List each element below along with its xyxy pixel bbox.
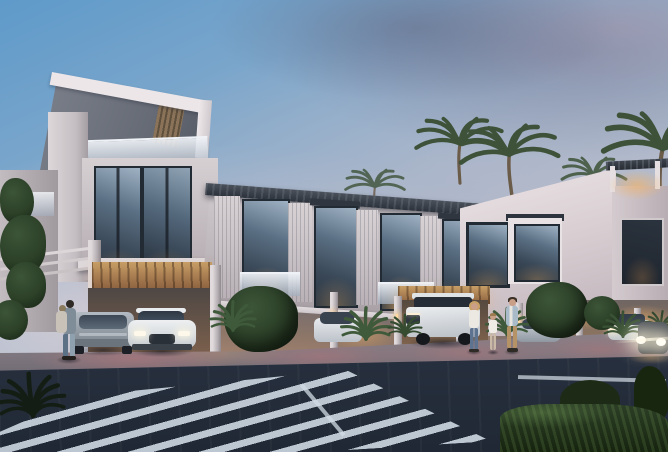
pergola-warm-glow <box>608 170 666 200</box>
headlight-ground-glow <box>628 352 668 364</box>
right-window-bay-2-glass <box>514 224 560 282</box>
crossover-headlight-left <box>134 331 146 336</box>
man-legs <box>507 326 517 348</box>
couple-head-back <box>66 300 74 308</box>
person-man <box>503 297 521 356</box>
crossover-headlight-right <box>178 331 190 336</box>
man-torso <box>506 306 518 326</box>
couple-torso-front <box>56 311 67 333</box>
fan-palm-bush-3 <box>382 298 428 344</box>
foreground-hedge <box>500 404 668 452</box>
man-head <box>509 299 516 306</box>
fan-palm-bush-1 <box>202 280 264 340</box>
person-child <box>487 314 499 356</box>
suv-tail-strip <box>79 333 127 336</box>
woman-shoes <box>469 349 479 352</box>
architectural-rendering <box>0 0 668 452</box>
white-crossover <box>128 306 196 354</box>
right-dark-window <box>620 218 664 286</box>
woman-head <box>471 303 478 310</box>
foreground-palm-silhouette <box>0 345 80 426</box>
carport-ceiling-left <box>92 262 212 290</box>
child-hair <box>490 313 496 316</box>
crossover-grille <box>149 334 175 344</box>
suv-rear-window <box>79 315 127 329</box>
person-woman <box>466 301 482 355</box>
man-shoes <box>507 348 518 352</box>
woman-legs <box>470 328 478 350</box>
woman-torso <box>469 310 479 328</box>
child-torso <box>489 320 497 333</box>
person-shadow <box>487 350 499 355</box>
child-legs <box>490 333 496 350</box>
glare-car <box>634 318 668 362</box>
right-window-bay-1 <box>466 222 510 288</box>
crossover-bumper <box>132 344 192 350</box>
